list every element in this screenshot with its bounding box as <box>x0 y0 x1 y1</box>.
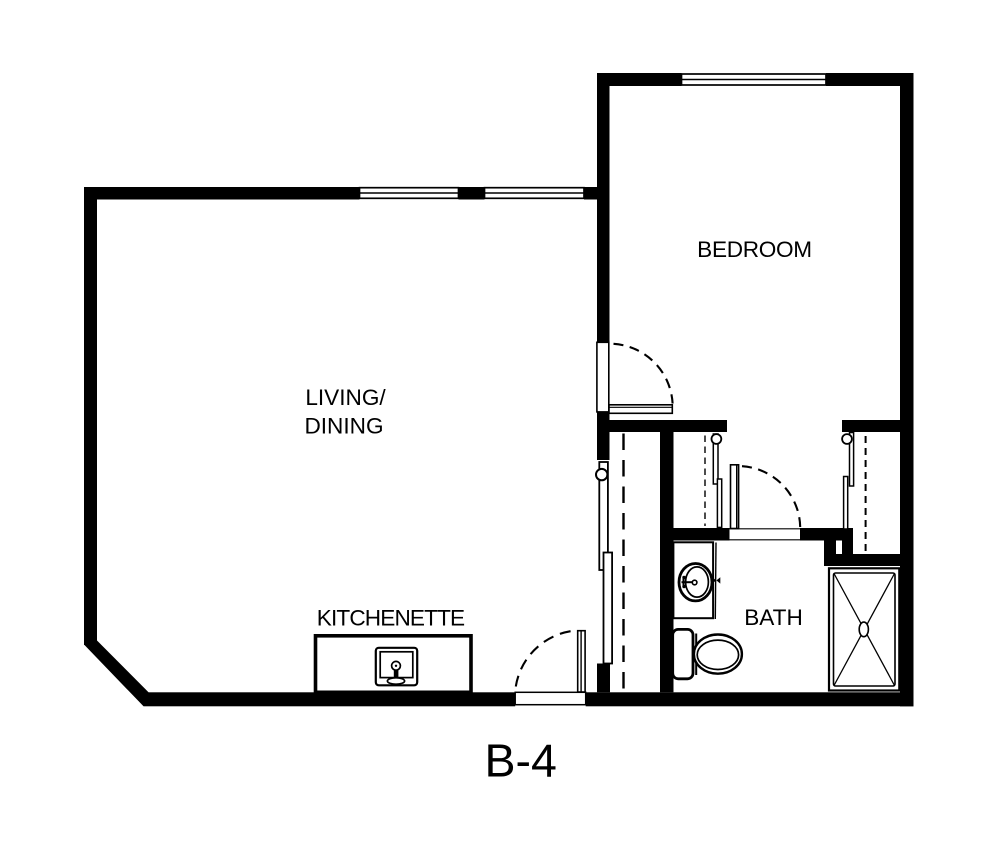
svg-text:LIVING/: LIVING/ <box>305 385 386 410</box>
svg-text:DINING: DINING <box>304 414 383 439</box>
svg-text:BATH: BATH <box>744 605 803 630</box>
svg-text:BEDROOM: BEDROOM <box>697 237 812 262</box>
svg-text:KITCHENETTE: KITCHENETTE <box>317 605 465 630</box>
svg-text:B-4: B-4 <box>485 734 557 786</box>
